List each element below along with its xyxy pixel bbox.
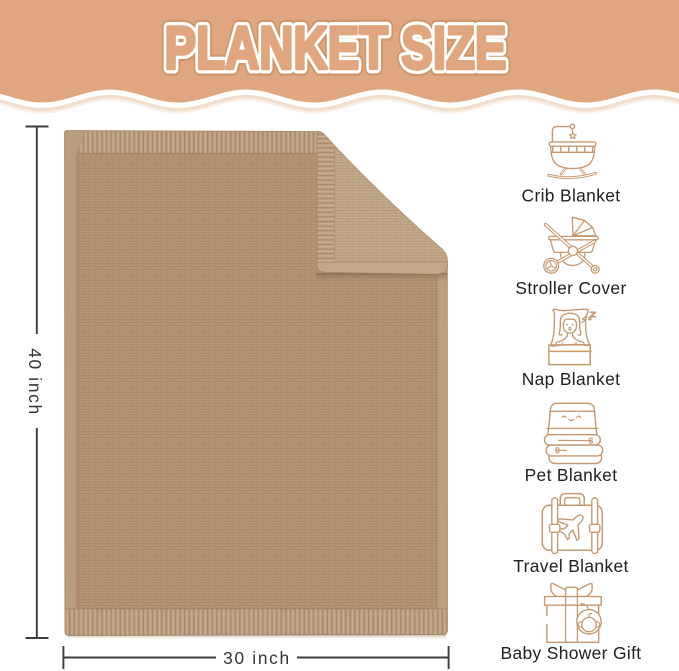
svg-text:40 inch: 40 inch xyxy=(25,348,45,416)
svg-text:Travel Blanket: Travel Blanket xyxy=(513,556,628,576)
svg-text:Pet Blanket: Pet Blanket xyxy=(525,465,618,485)
svg-text:PLANKET SIZE: PLANKET SIZE xyxy=(165,15,507,82)
svg-text:Nap Blanket: Nap Blanket xyxy=(522,369,621,389)
svg-text:Crib Blanket: Crib Blanket xyxy=(522,186,621,206)
svg-text:Stroller Cover: Stroller Cover xyxy=(515,278,626,298)
svg-text:Baby Shower Gift: Baby Shower Gift xyxy=(501,643,642,663)
svg-text:30 inch: 30 inch xyxy=(223,648,291,668)
